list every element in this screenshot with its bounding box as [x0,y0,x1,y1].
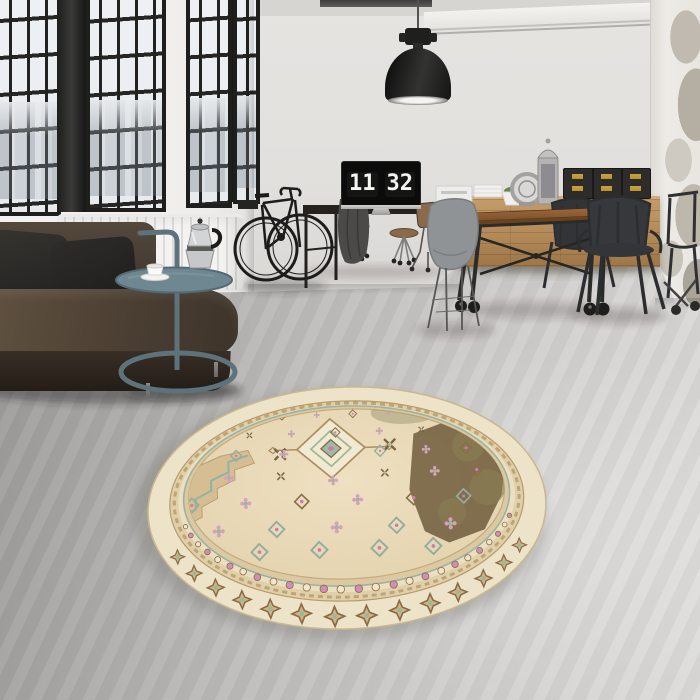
lamp-lug [399,33,406,42]
lamp-rim [388,96,448,105]
loft-interior-photo: 11 32 [0,0,700,700]
side-table [116,232,235,391]
moka-pot [186,218,220,268]
lamp-lug [430,33,437,42]
side-table-group [0,0,700,700]
